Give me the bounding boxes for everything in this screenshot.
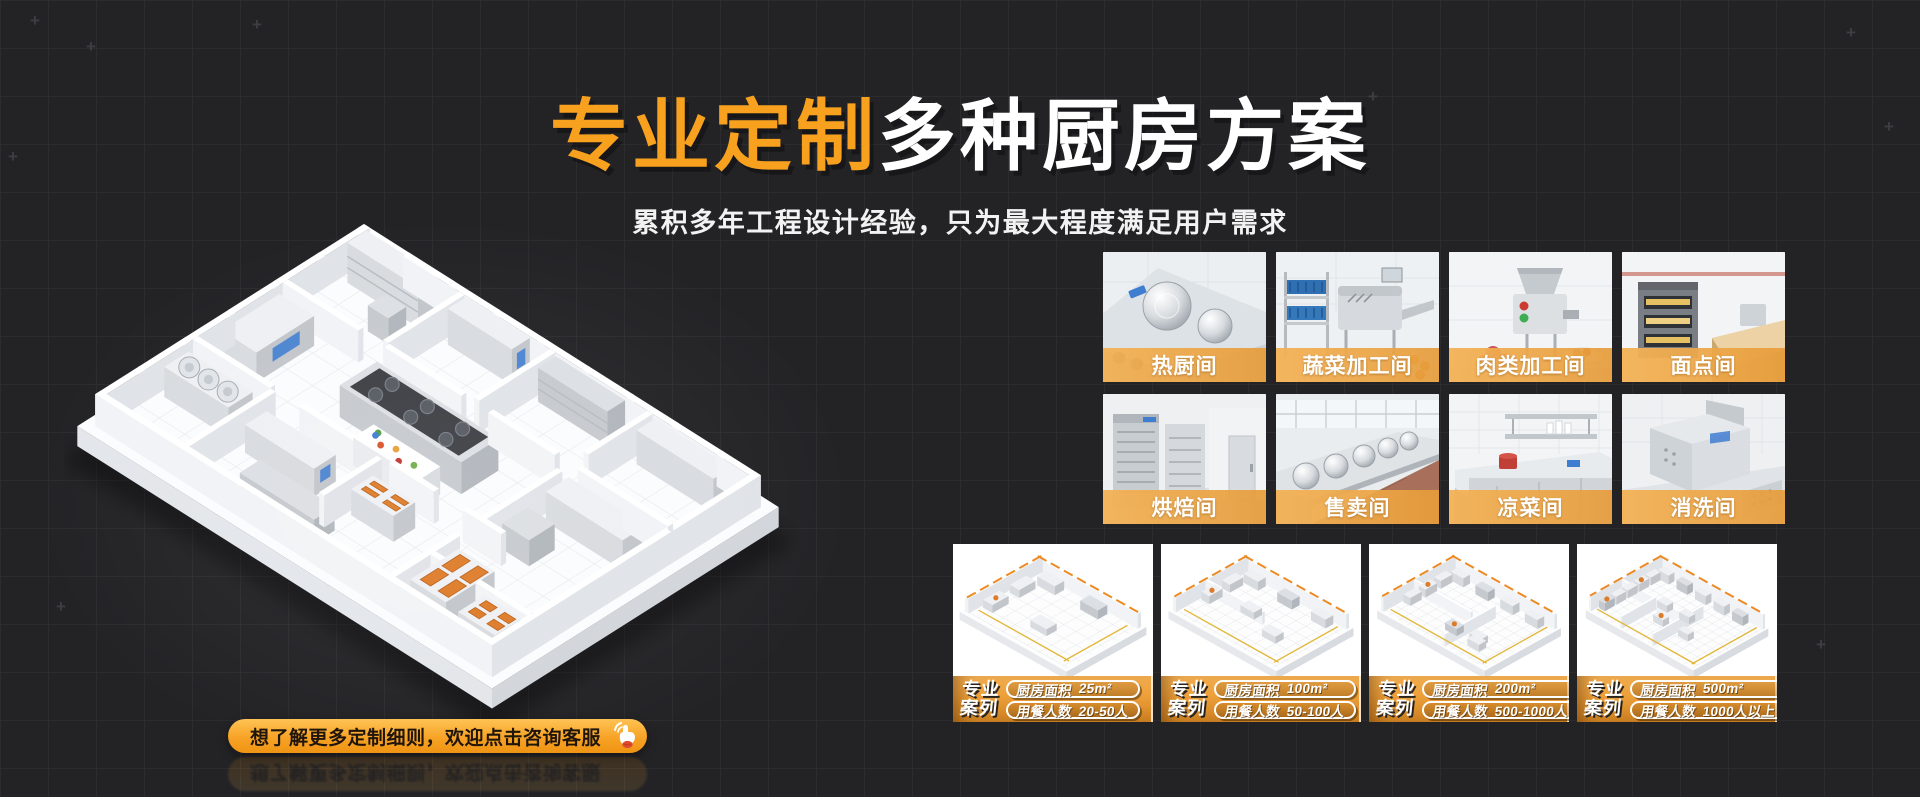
title-rest: 多种厨房方案: [878, 92, 1370, 180]
room-label: 消洗间: [1622, 490, 1785, 524]
room-card-hot-kitchen[interactable]: 热厨间: [1103, 252, 1266, 382]
hand-click-icon: [607, 718, 641, 752]
case-banner: 专业案列 厨房面积500m² 用餐人数1000人以上: [1577, 676, 1777, 722]
plus-mark: +: [1846, 24, 1856, 41]
case-card-25m2[interactable]: 专业案列 厨房面积25m² 用餐人数20-50人: [953, 544, 1153, 722]
kitchen-area-pill: 厨房面积100m²: [1214, 680, 1356, 698]
kitchen-area-pill: 厨房面积500m²: [1630, 680, 1777, 698]
diners-pill: 用餐人数500-1000人: [1422, 701, 1569, 719]
case-card-100m2[interactable]: 专业案列 厨房面积100m² 用餐人数50-100人: [1161, 544, 1361, 722]
diners-pill: 用餐人数1000人以上: [1630, 701, 1777, 719]
consult-cta-button[interactable]: 想了解更多定制细则，欢迎点击咨询客服: [228, 719, 647, 753]
hero-banner: 专业定制多种厨房方案 累积多年工程设计经验，只为最大程度满足用户需求 想了解更多…: [0, 0, 1920, 797]
case-visual-isometric-kitchen: [953, 544, 1153, 676]
plus-mark: +: [252, 16, 262, 33]
room-card-meat-processing[interactable]: 肉类加工间: [1449, 252, 1612, 382]
case-banner: 专业案列 厨房面积25m² 用餐人数20-50人: [953, 676, 1153, 722]
room-label: 凉菜间: [1449, 490, 1612, 524]
case-visual-isometric-kitchen: [1161, 544, 1361, 676]
room-card-cold-dish[interactable]: 凉菜间: [1449, 394, 1612, 524]
room-label: 售卖间: [1276, 490, 1439, 524]
case-badge: 专业案列: [1583, 680, 1625, 718]
plus-mark: +: [30, 12, 40, 29]
plus-mark: +: [86, 38, 96, 55]
cta-label: 想了解更多定制细则，欢迎点击咨询客服: [250, 723, 601, 750]
case-banner: 专业案列 厨房面积200m² 用餐人数500-1000人: [1369, 676, 1569, 722]
room-card-baking[interactable]: 烘焙间: [1103, 394, 1266, 524]
case-banner: 专业案列 厨房面积100m² 用餐人数50-100人: [1161, 676, 1361, 722]
room-label: 蔬菜加工间: [1276, 348, 1439, 382]
floorplan-glow: [34, 218, 854, 778]
room-label: 肉类加工间: [1449, 348, 1612, 382]
diners-pill: 用餐人数50-100人: [1214, 701, 1356, 719]
room-card-selling[interactable]: 售卖间: [1276, 394, 1439, 524]
room-card-vegetable-processing[interactable]: 蔬菜加工间: [1276, 252, 1439, 382]
room-label: 面点间: [1622, 348, 1785, 382]
kitchen-area-pill: 厨房面积25m²: [1006, 680, 1140, 698]
case-badge: 专业案列: [1167, 680, 1209, 718]
case-visual-isometric-kitchen: [1369, 544, 1569, 676]
case-card-200m2[interactable]: 专业案列 厨房面积200m² 用餐人数500-1000人: [1369, 544, 1569, 722]
title-highlight: 专业定制: [550, 92, 878, 180]
diners-pill: 用餐人数20-50人: [1006, 701, 1140, 719]
room-label: 烘焙间: [1103, 490, 1266, 524]
room-card-pastry[interactable]: 面点间: [1622, 252, 1785, 382]
kitchen-floorplan-illustration: [64, 178, 814, 768]
plus-mark: +: [1816, 636, 1826, 653]
room-card-dishwashing[interactable]: 消洗间: [1622, 394, 1785, 524]
case-badge: 专业案列: [1375, 680, 1417, 718]
page-title: 专业定制多种厨房方案: [0, 92, 1920, 182]
case-visual-isometric-kitchen: [1577, 544, 1777, 676]
function-rooms-grid: 热厨间 蔬菜加工间: [1103, 252, 1785, 524]
case-cards-row: 专业案列 厨房面积25m² 用餐人数20-50人 专业案列 厨房面积100m² …: [953, 544, 1777, 722]
case-badge: 专业案列: [959, 680, 1001, 718]
kitchen-area-pill: 厨房面积200m²: [1422, 680, 1569, 698]
room-label: 热厨间: [1103, 348, 1266, 382]
case-card-500m2[interactable]: 专业案列 厨房面积500m² 用餐人数1000人以上: [1577, 544, 1777, 722]
